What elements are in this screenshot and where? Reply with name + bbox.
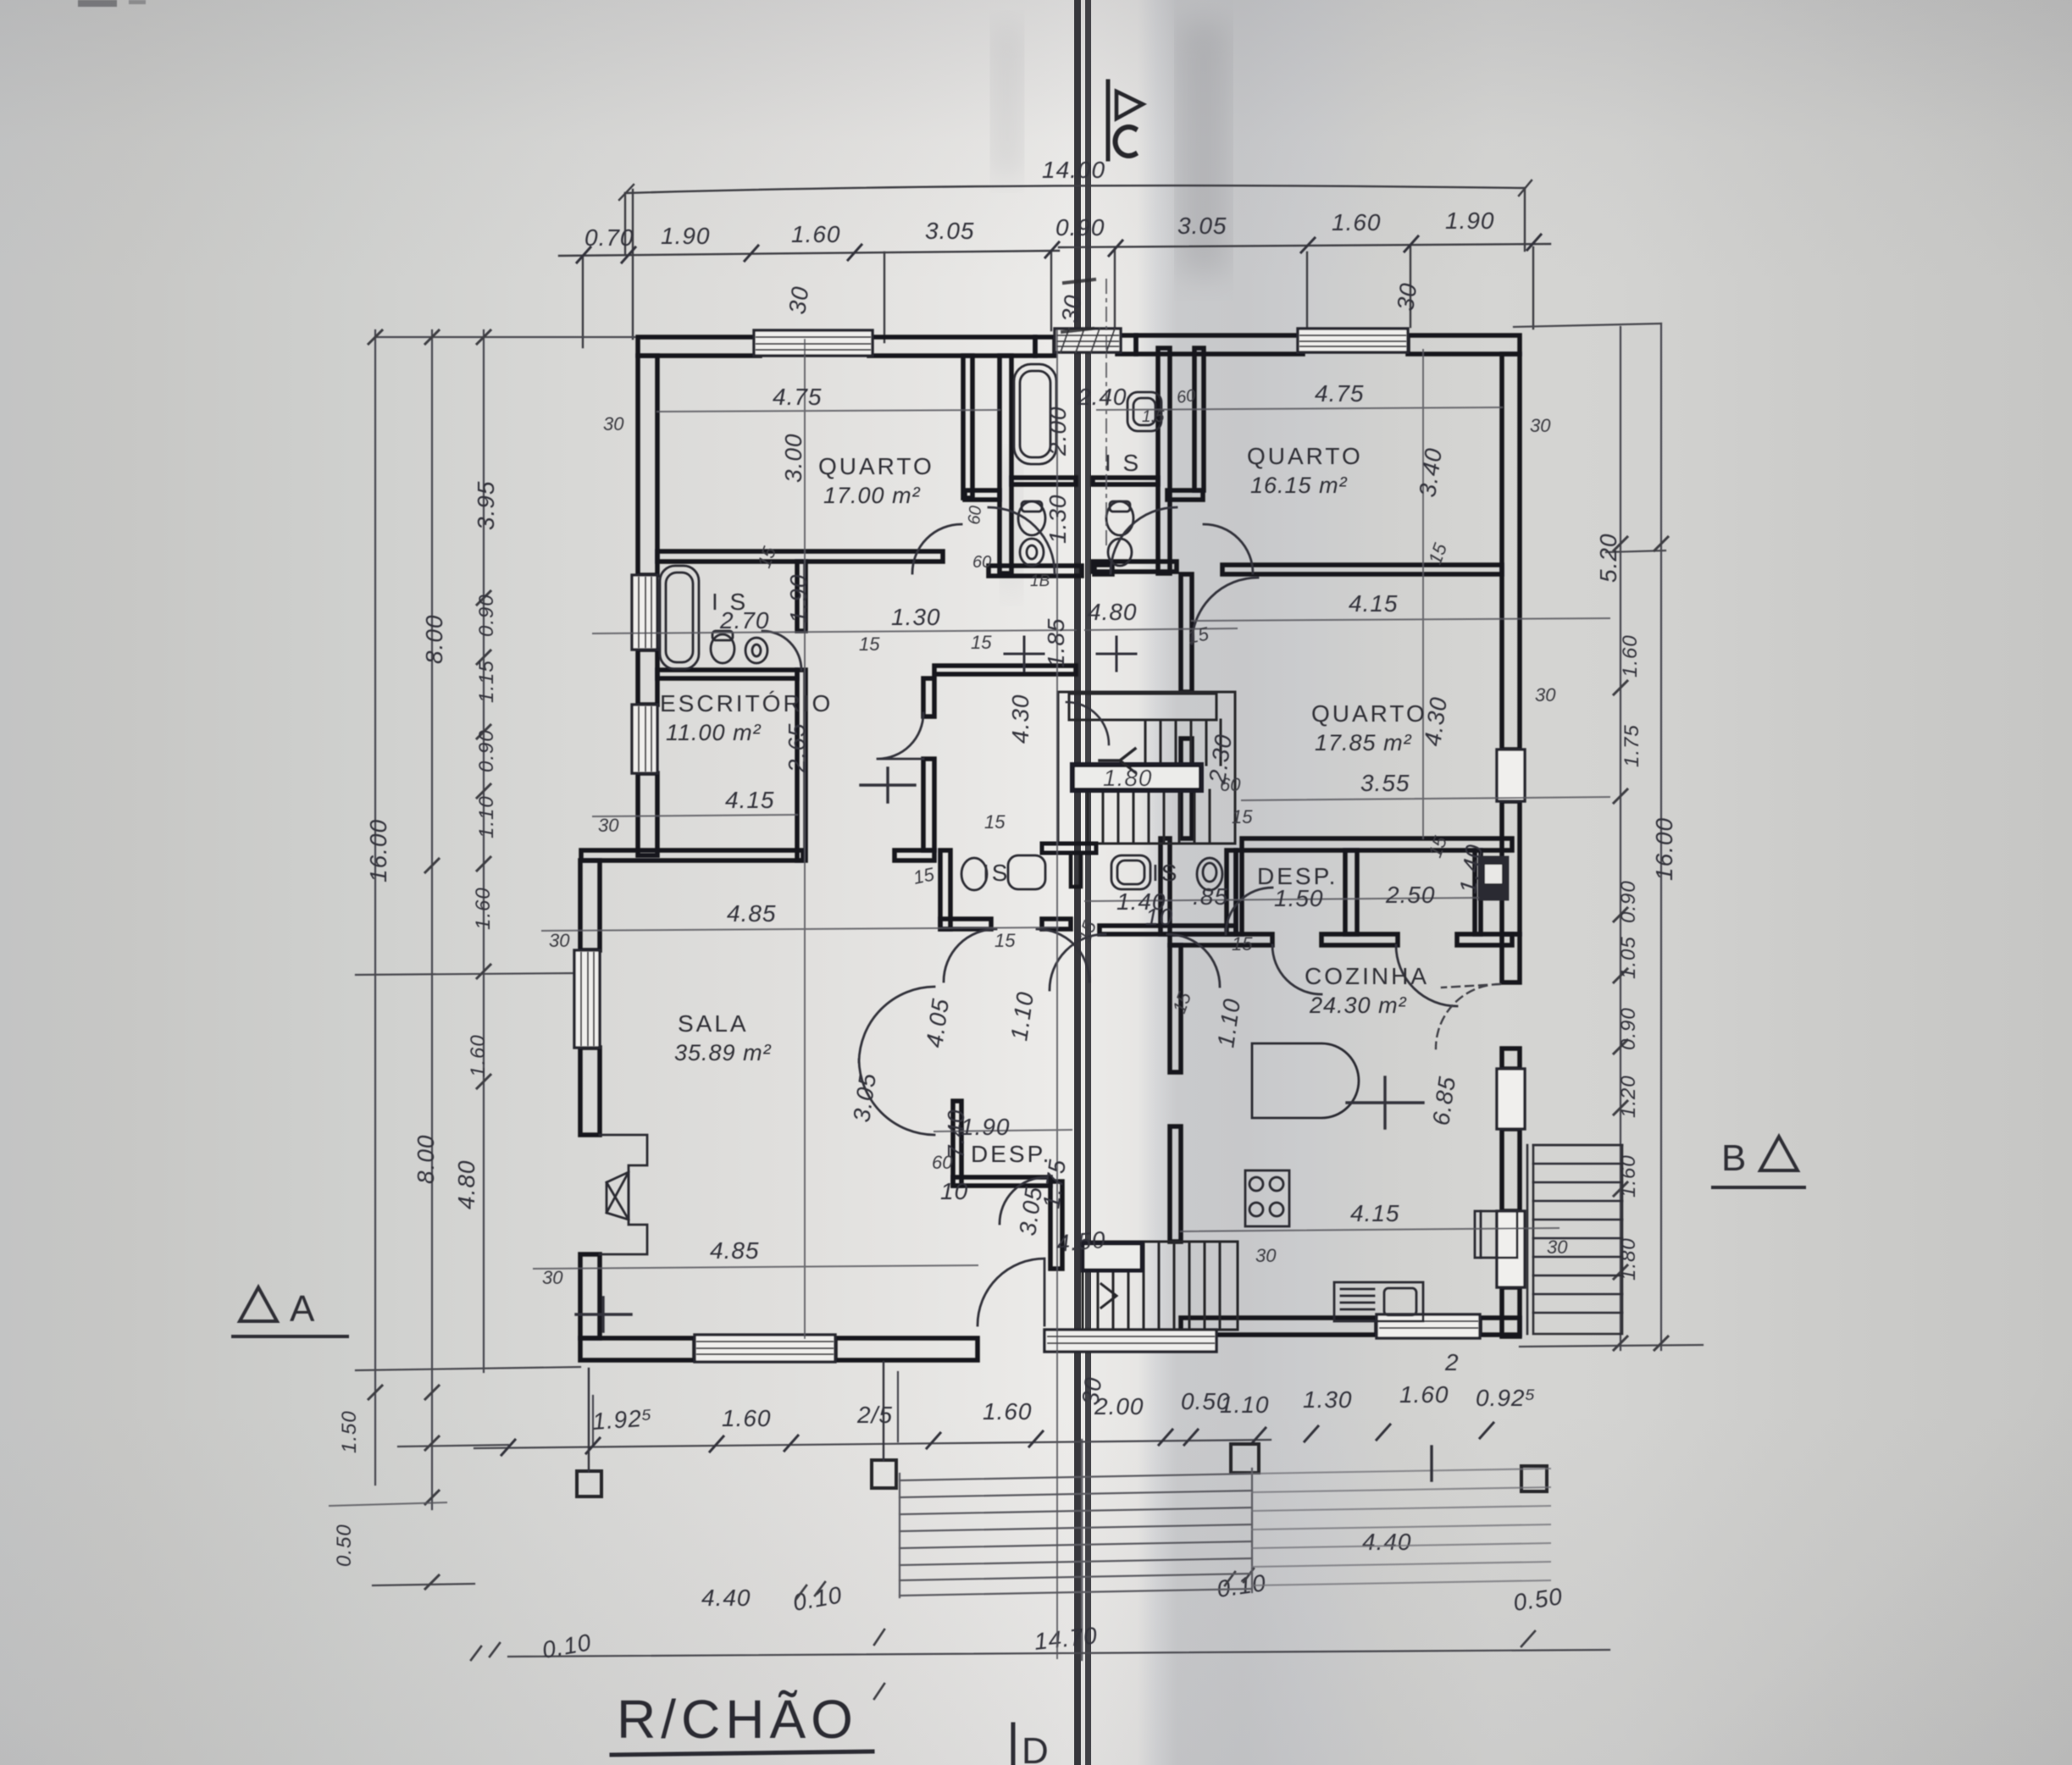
svg-text:4.80: 4.80 bbox=[1088, 599, 1138, 625]
svg-text:1.30: 1.30 bbox=[1044, 495, 1071, 545]
svg-text:15: 15 bbox=[1232, 933, 1253, 954]
svg-text:1.5: 1.5 bbox=[1142, 408, 1165, 426]
svg-text:4.15: 4.15 bbox=[1350, 1200, 1400, 1226]
svg-text:10: 10 bbox=[1145, 904, 1173, 930]
svg-text:IS: IS bbox=[1152, 860, 1179, 886]
svg-text:1.80: 1.80 bbox=[1617, 1237, 1640, 1281]
svg-text:1.85: 1.85 bbox=[1043, 618, 1069, 668]
svg-text:15: 15 bbox=[994, 930, 1016, 951]
svg-text:R/CHÃO: R/CHÃO bbox=[617, 1689, 858, 1750]
svg-text:30: 30 bbox=[598, 815, 619, 836]
svg-text:COZINHA: COZINHA bbox=[1305, 963, 1429, 989]
svg-text:1.05: 1.05 bbox=[1617, 936, 1640, 979]
svg-text:8.00: 8.00 bbox=[413, 1135, 439, 1185]
svg-text:1.75: 1.75 bbox=[1620, 724, 1643, 767]
svg-text:A: A bbox=[290, 1288, 315, 1330]
svg-text:30: 30 bbox=[1535, 684, 1556, 705]
svg-text:60: 60 bbox=[1176, 386, 1197, 407]
svg-text:1.60: 1.60 bbox=[1617, 1154, 1640, 1198]
svg-text:1.60: 1.60 bbox=[1332, 209, 1382, 235]
svg-text:16.00: 16.00 bbox=[1651, 817, 1677, 881]
svg-text:0.90: 0.90 bbox=[1617, 880, 1640, 923]
svg-text:B: B bbox=[1721, 1137, 1746, 1179]
svg-text:2/5: 2/5 bbox=[856, 1402, 893, 1428]
svg-text:1.60: 1.60 bbox=[472, 887, 495, 930]
svg-text:0.50: 0.50 bbox=[333, 1524, 356, 1567]
svg-text:30: 30 bbox=[542, 1267, 563, 1288]
svg-text:3.05: 3.05 bbox=[1177, 213, 1227, 239]
svg-text:4.50: 4.50 bbox=[1055, 1226, 1107, 1257]
svg-text:15: 15 bbox=[859, 634, 880, 655]
svg-text:3.05: 3.05 bbox=[925, 218, 975, 244]
svg-text:1.60: 1.60 bbox=[1399, 1381, 1449, 1408]
svg-text:4.80: 4.80 bbox=[453, 1160, 479, 1210]
svg-text:0.90: 0.90 bbox=[1617, 1007, 1640, 1050]
svg-text:1B: 1B bbox=[1030, 573, 1050, 590]
svg-text:35.89 m²: 35.89 m² bbox=[674, 1040, 772, 1065]
svg-text:1.60: 1.60 bbox=[791, 221, 841, 247]
svg-text:1.50: 1.50 bbox=[1274, 885, 1324, 911]
svg-text:0.70: 0.70 bbox=[584, 224, 634, 251]
svg-text:4.85: 4.85 bbox=[710, 1237, 760, 1264]
svg-text:2.70: 2.70 bbox=[719, 607, 770, 634]
svg-text:1.10: 1.10 bbox=[475, 795, 498, 838]
svg-text:30: 30 bbox=[1077, 1375, 1106, 1407]
svg-text:30: 30 bbox=[1392, 281, 1421, 313]
svg-text:0.92⁵: 0.92⁵ bbox=[1476, 1385, 1536, 1411]
svg-text:16.15 m²: 16.15 m² bbox=[1250, 473, 1348, 498]
svg-text:11.00 m²: 11.00 m² bbox=[666, 720, 762, 745]
svg-text:0.90: 0.90 bbox=[1055, 214, 1105, 241]
svg-text:30: 30 bbox=[1530, 415, 1551, 436]
svg-text:1.80: 1.80 bbox=[1103, 765, 1153, 791]
svg-text:1.10: 1.10 bbox=[1220, 1392, 1270, 1418]
svg-text:30: 30 bbox=[1255, 1245, 1277, 1266]
svg-text:4.40: 4.40 bbox=[1362, 1529, 1412, 1555]
svg-text:4.75: 4.75 bbox=[773, 384, 823, 410]
svg-text:4.40: 4.40 bbox=[701, 1585, 751, 1611]
svg-text:.85: .85 bbox=[1193, 883, 1228, 910]
svg-text:30: 30 bbox=[549, 930, 570, 951]
svg-text:30: 30 bbox=[1547, 1237, 1568, 1258]
svg-text:3.95: 3.95 bbox=[473, 481, 499, 531]
svg-text:2.50: 2.50 bbox=[1385, 882, 1436, 908]
svg-text:1.20: 1.20 bbox=[1617, 1075, 1640, 1118]
svg-text:17.85 m²: 17.85 m² bbox=[1315, 730, 1412, 755]
svg-text:1.60: 1.60 bbox=[983, 1398, 1033, 1425]
svg-text:0.90: 0.90 bbox=[475, 594, 498, 637]
svg-text:4.30: 4.30 bbox=[1007, 694, 1033, 744]
svg-text:14.00: 14.00 bbox=[1042, 157, 1105, 183]
svg-text:2.65: 2.65 bbox=[784, 723, 810, 774]
svg-text:1.90: 1.90 bbox=[961, 1114, 1011, 1140]
svg-text:17.00 m²: 17.00 m² bbox=[823, 483, 921, 508]
svg-text:D: D bbox=[1022, 1730, 1049, 1765]
svg-text:DESP.: DESP. bbox=[971, 1141, 1051, 1167]
svg-text:30: 30 bbox=[603, 413, 624, 434]
svg-text:4.75: 4.75 bbox=[1315, 380, 1365, 407]
svg-text:2.00: 2.00 bbox=[1044, 407, 1071, 457]
svg-text:I S: I S bbox=[1105, 450, 1141, 476]
svg-text:0.90: 0.90 bbox=[475, 729, 498, 772]
svg-text:24.30 m²: 24.30 m² bbox=[1309, 993, 1407, 1018]
svg-text:QUARTO: QUARTO bbox=[818, 453, 934, 479]
svg-text:16.00: 16.00 bbox=[365, 819, 391, 882]
svg-text:QUARTO: QUARTO bbox=[1247, 443, 1363, 469]
svg-text:ESCRITÓRIO: ESCRITÓRIO bbox=[660, 690, 833, 717]
svg-text:8.00: 8.00 bbox=[421, 615, 447, 665]
svg-text:4.15: 4.15 bbox=[1349, 590, 1399, 617]
svg-text:15: 15 bbox=[984, 811, 1006, 833]
svg-text:2: 2 bbox=[1444, 1349, 1460, 1375]
svg-text:60: 60 bbox=[965, 505, 985, 525]
svg-text:1.90: 1.90 bbox=[661, 223, 711, 249]
svg-text:1.50: 1.50 bbox=[338, 1410, 361, 1453]
svg-text:4.85: 4.85 bbox=[727, 900, 777, 927]
svg-text:1.90: 1.90 bbox=[785, 574, 812, 624]
svg-text:1.15: 1.15 bbox=[475, 660, 498, 703]
svg-text:SALA: SALA bbox=[678, 1010, 749, 1037]
svg-text:1.60: 1.60 bbox=[1619, 634, 1642, 678]
svg-text:1.60: 1.60 bbox=[722, 1405, 772, 1431]
svg-text:3.55: 3.55 bbox=[1360, 770, 1410, 796]
svg-text:15: 15 bbox=[1232, 806, 1253, 827]
svg-text:IS: IS bbox=[983, 860, 1010, 886]
svg-text:30: 30 bbox=[1056, 293, 1086, 324]
svg-text:QUARTO: QUARTO bbox=[1311, 700, 1427, 727]
svg-text:1.30: 1.30 bbox=[891, 604, 941, 630]
svg-text:60: 60 bbox=[972, 553, 991, 572]
svg-text:30: 30 bbox=[784, 285, 813, 316]
svg-text:1.92⁵: 1.92⁵ bbox=[591, 1404, 653, 1435]
svg-text:4.15: 4.15 bbox=[725, 787, 775, 813]
svg-text:10: 10 bbox=[940, 1178, 968, 1204]
svg-text:60: 60 bbox=[932, 1152, 953, 1173]
svg-text:3.00: 3.00 bbox=[780, 434, 806, 484]
svg-text:15: 15 bbox=[971, 632, 992, 653]
svg-text:1.30: 1.30 bbox=[1303, 1386, 1353, 1413]
svg-text:1.90: 1.90 bbox=[1445, 207, 1495, 234]
svg-text:2.40: 2.40 bbox=[1077, 384, 1127, 410]
svg-text:5.20: 5.20 bbox=[1595, 534, 1621, 584]
svg-text:1.60: 1.60 bbox=[467, 1034, 490, 1077]
